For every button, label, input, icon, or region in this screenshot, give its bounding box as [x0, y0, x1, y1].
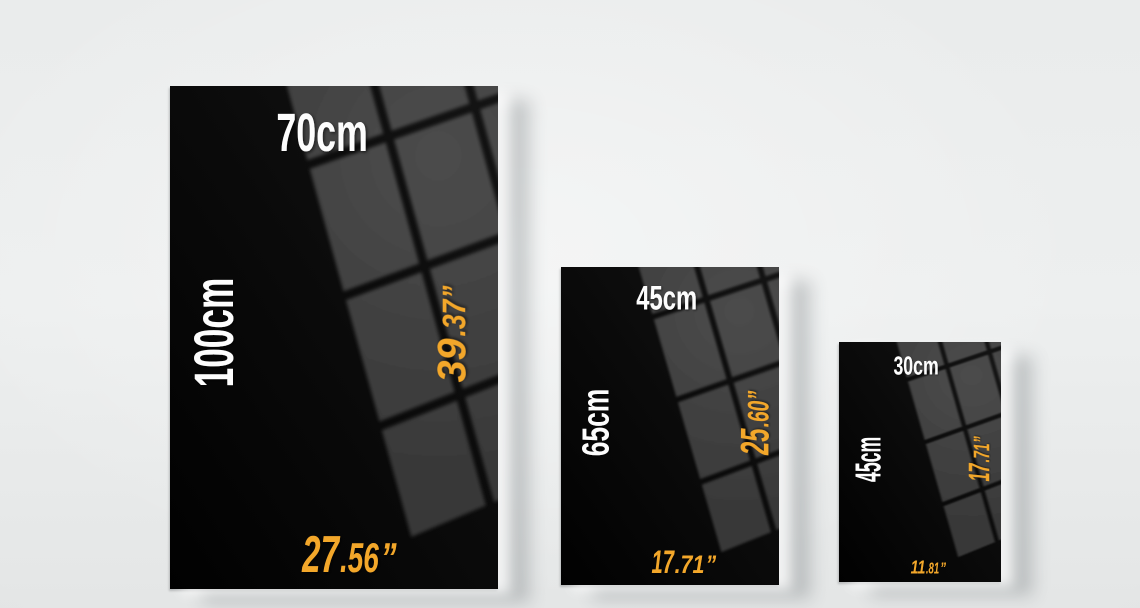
svg-text:”: ” — [743, 390, 776, 400]
svg-text:”: ” — [381, 534, 397, 581]
svg-text:17: 17 — [964, 462, 996, 481]
svg-text:.60: .60 — [743, 401, 776, 428]
svg-text:.37: .37 — [435, 298, 472, 336]
svg-text:39: 39 — [430, 338, 474, 382]
svg-text:.71: .71 — [675, 552, 705, 579]
svg-text:25: 25 — [734, 428, 778, 455]
svg-text:.81: .81 — [926, 561, 939, 578]
svg-text:”: ” — [969, 436, 994, 443]
svg-text:.56: .56 — [340, 534, 379, 581]
svg-text:”: ” — [435, 285, 472, 298]
svg-text:30cm: 30cm — [893, 351, 938, 381]
svg-text:27: 27 — [302, 525, 341, 583]
svg-text:65cm: 65cm — [574, 389, 617, 457]
svg-text:.71: .71 — [969, 443, 994, 462]
svg-text:11: 11 — [911, 557, 926, 578]
svg-text:100cm: 100cm — [183, 278, 245, 388]
svg-text:45cm: 45cm — [849, 437, 889, 482]
svg-text:”: ” — [706, 552, 717, 579]
svg-text:45cm: 45cm — [636, 279, 697, 317]
svg-text:”: ” — [940, 561, 946, 578]
svg-text:70cm: 70cm — [276, 103, 367, 163]
svg-text:17: 17 — [652, 545, 675, 581]
